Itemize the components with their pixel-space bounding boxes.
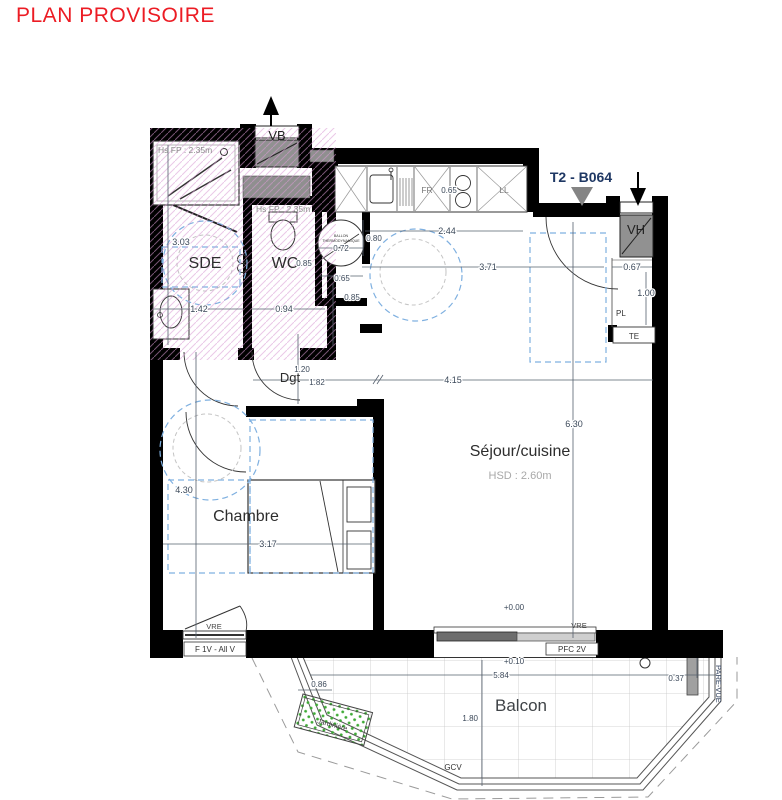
washer-label: LL [499, 185, 509, 195]
dim-pare-vue-width: 0.37 [668, 674, 684, 683]
floor-plan-page: PLAN PROVISOIRE [0, 0, 782, 800]
dim-balcon-depth: 1.80 [462, 714, 478, 723]
sde-ceiling-note: Hs FP : 2.35m [158, 145, 212, 155]
dim-ballon-width: 0.72 [333, 244, 349, 253]
wc-ceiling-note: Hs FP : 2.35m [256, 204, 310, 214]
room-label-chambre: Chambre [213, 508, 279, 525]
room-label-sde: SDE [189, 255, 222, 272]
dim-balcon-width: 5.84 [493, 671, 509, 680]
room-label-sejour: Séjour/cuisine [470, 443, 571, 460]
room-label-wc: WC [272, 255, 299, 272]
down-arrow-icon [630, 172, 646, 206]
vre-sejour-label: VRE [571, 621, 586, 630]
dim-dgt-width: 1.20 [294, 365, 310, 374]
vh-entry-door [620, 172, 653, 257]
dim-sde-depth: 3.03 [172, 237, 190, 247]
dim-ballon-front: 0.80 [366, 234, 382, 243]
vb-label: VB [268, 128, 285, 143]
bed [248, 480, 375, 573]
dim-ballon-clear-w: 0.65 [334, 274, 350, 283]
chambre-window-label: F 1V - All V [195, 645, 236, 654]
up-arrow-icon [263, 96, 279, 126]
room-label-balcon: Balcon [495, 696, 547, 715]
dim-chambre-width: 3.17 [259, 539, 277, 549]
sejour-window-label: PFC 2V [558, 645, 587, 654]
gcv-label: GCV [444, 763, 462, 772]
vre-chambre-label: VRE [206, 622, 221, 631]
water-heater-label: BALLON [334, 234, 349, 238]
level-interior: +0.00 [504, 603, 525, 612]
dim-kitchen-width: 2.44 [438, 226, 456, 236]
dim-balcon-side: 0.86 [311, 680, 327, 689]
dim-dgt-length: 1.82 [309, 378, 325, 387]
te-label: TE [629, 332, 639, 341]
floor-plan-drawing: Hs FP : 2.35m Hs FP : 2.35m SDE WC Dgt S… [0, 0, 782, 800]
dim-kitchen-fr: 0.65 [441, 186, 457, 195]
level-balcony: +0.10 [504, 657, 525, 666]
unit-label: T2 - B064 [550, 169, 612, 185]
dim-sde-width: 1.42 [190, 304, 208, 314]
pl-label: PL [616, 309, 626, 318]
dim-chambre-depth: 4.30 [175, 485, 193, 495]
vh-label: VH [627, 222, 645, 237]
dim-sejour-depth: 6.30 [565, 419, 583, 429]
water-heater-label-2: THERMODYNAMIQUE [322, 239, 360, 243]
pare-vue-panel [687, 657, 698, 695]
pare-vue-label: PARE-VUE [714, 665, 723, 703]
sde-door-arc [184, 352, 238, 406]
dim-wc-depth: 0.85 [296, 259, 312, 268]
dim-pl-width: 0.67 [623, 262, 641, 272]
sejour-ceiling-note: HSD : 2.60m [489, 470, 552, 482]
dim-pl-depth: 1.00 [637, 288, 655, 298]
dim-wc-width: 0.94 [275, 304, 293, 314]
dim-entry-width: 3.71 [479, 262, 497, 272]
dim-sejour-width: 4.15 [444, 375, 462, 385]
fridge-label: FR [421, 185, 432, 195]
entry-door-arc [546, 217, 618, 289]
balcony-drain-circle [640, 658, 650, 668]
dim-ballon-clear-d: 0.85 [344, 293, 360, 302]
